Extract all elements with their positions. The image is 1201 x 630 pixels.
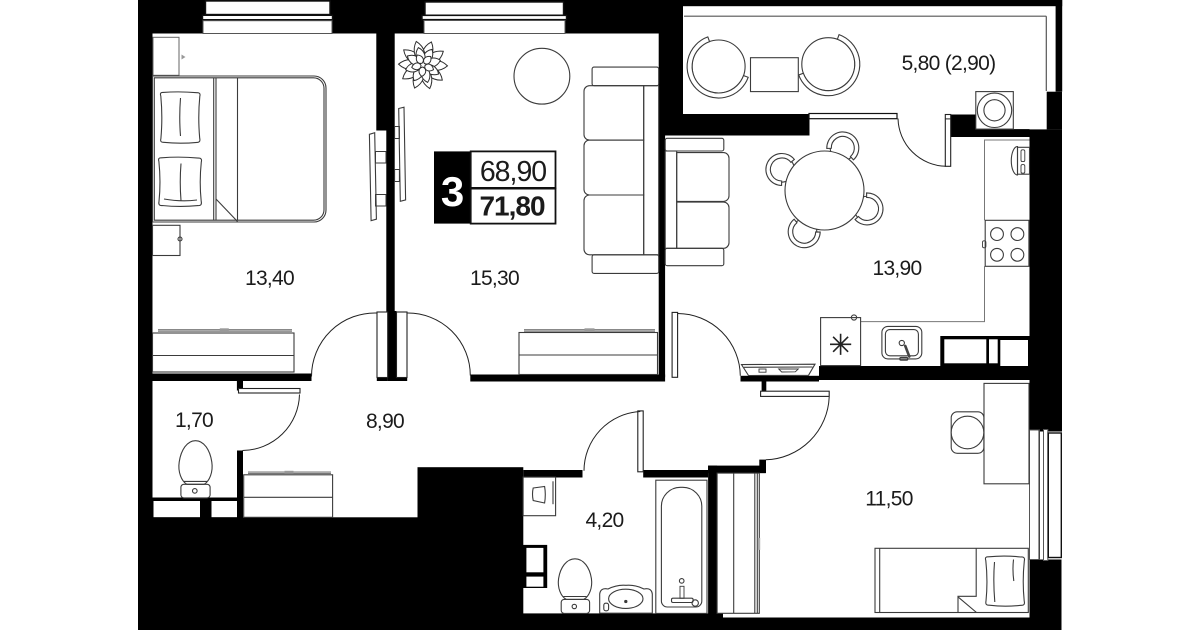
svg-text:8,90: 8,90: [366, 410, 404, 433]
svg-text:3: 3: [441, 168, 464, 215]
svg-text:11,50: 11,50: [865, 488, 913, 511]
svg-text:68,90: 68,90: [480, 156, 546, 188]
svg-text:4,20: 4,20: [585, 509, 623, 532]
svg-text:13,40: 13,40: [245, 267, 294, 290]
svg-text:1,70: 1,70: [175, 409, 213, 432]
svg-text:5,80 (2,90): 5,80 (2,90): [902, 52, 996, 75]
svg-text:15,30: 15,30: [470, 267, 519, 290]
svg-text:13,90: 13,90: [872, 257, 921, 280]
svg-text:71,80: 71,80: [479, 191, 544, 222]
